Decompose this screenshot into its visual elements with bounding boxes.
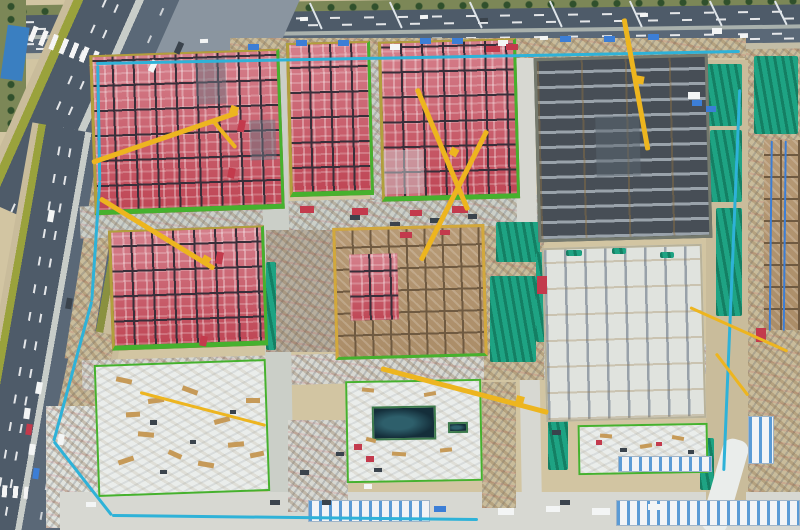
red-material-stack xyxy=(440,230,450,235)
machinery xyxy=(552,430,561,435)
car xyxy=(740,34,748,38)
red-equipment xyxy=(596,440,602,445)
machinery xyxy=(374,468,382,472)
white-board xyxy=(688,92,700,99)
blue-panel xyxy=(452,38,463,44)
aerial-photo-construction-site xyxy=(0,0,800,530)
clutter-bottom-center xyxy=(288,420,348,512)
red-material-stack xyxy=(400,232,412,238)
blue-panel xyxy=(248,44,259,50)
car xyxy=(200,39,208,43)
machinery xyxy=(160,470,167,474)
site-office-row xyxy=(618,456,712,472)
car xyxy=(420,15,428,19)
grid-tone-patch xyxy=(249,120,276,161)
crosswalk-south xyxy=(2,485,29,499)
truck xyxy=(270,500,280,505)
blue-panel xyxy=(604,36,615,42)
car xyxy=(86,502,96,507)
red-material-stack xyxy=(410,210,422,216)
white-board xyxy=(390,44,400,50)
block-red-north-small xyxy=(286,41,374,197)
container-stack xyxy=(748,416,774,464)
block-red-west xyxy=(108,225,268,350)
car xyxy=(300,17,308,21)
blue-panel xyxy=(692,100,702,106)
red-material-stack xyxy=(486,46,500,52)
slab-tone-patch xyxy=(595,115,641,176)
truck xyxy=(592,508,610,515)
blue-panel xyxy=(706,106,716,112)
truck xyxy=(648,504,662,510)
blue-panel xyxy=(560,36,571,42)
machinery xyxy=(322,500,331,505)
truck xyxy=(364,484,372,489)
truck xyxy=(498,508,514,515)
machinery xyxy=(150,420,157,425)
machinery xyxy=(620,448,627,452)
tarp-patch xyxy=(612,248,626,254)
green-tarp xyxy=(490,276,536,362)
tarp-patch xyxy=(566,250,582,256)
red-material-stack xyxy=(537,276,547,294)
green-tarp-mound xyxy=(754,56,798,134)
machinery xyxy=(300,470,309,475)
machinery xyxy=(350,215,360,220)
block-foundation-striped xyxy=(542,244,707,422)
red-equipment xyxy=(366,456,374,462)
crane-cab xyxy=(635,75,644,84)
red-material-stack xyxy=(300,206,314,213)
machinery xyxy=(230,410,236,414)
machinery xyxy=(468,214,477,219)
blue-panel xyxy=(296,40,307,46)
truck xyxy=(434,506,446,512)
excavation-pit xyxy=(372,405,437,440)
car xyxy=(480,18,488,22)
lumber-plank xyxy=(246,398,260,403)
red-material-stack xyxy=(506,44,518,50)
blue-panel xyxy=(420,38,431,44)
green-tarp xyxy=(496,222,540,262)
car xyxy=(540,36,548,40)
site-office-row xyxy=(616,500,800,526)
grid-tone-patch xyxy=(383,149,424,194)
red-equipment xyxy=(354,444,362,450)
red-formwork-cluster xyxy=(349,253,399,320)
machinery xyxy=(190,440,196,444)
tarp-patch xyxy=(660,252,674,258)
machinery xyxy=(336,452,344,456)
materials-yard-center xyxy=(266,230,336,352)
blue-panel xyxy=(648,34,659,40)
machinery xyxy=(560,500,570,505)
car xyxy=(640,13,648,17)
lumber-plank xyxy=(126,412,140,418)
white-board xyxy=(712,28,722,34)
green-tarp xyxy=(704,64,742,126)
machinery xyxy=(390,222,400,226)
red-equipment xyxy=(656,442,662,446)
excavation-pit-small xyxy=(448,422,468,433)
truck xyxy=(546,506,560,512)
grid-tone-patch xyxy=(195,57,227,104)
red-material-stack xyxy=(352,208,368,215)
machinery xyxy=(688,450,694,454)
blue-panel xyxy=(338,40,349,46)
